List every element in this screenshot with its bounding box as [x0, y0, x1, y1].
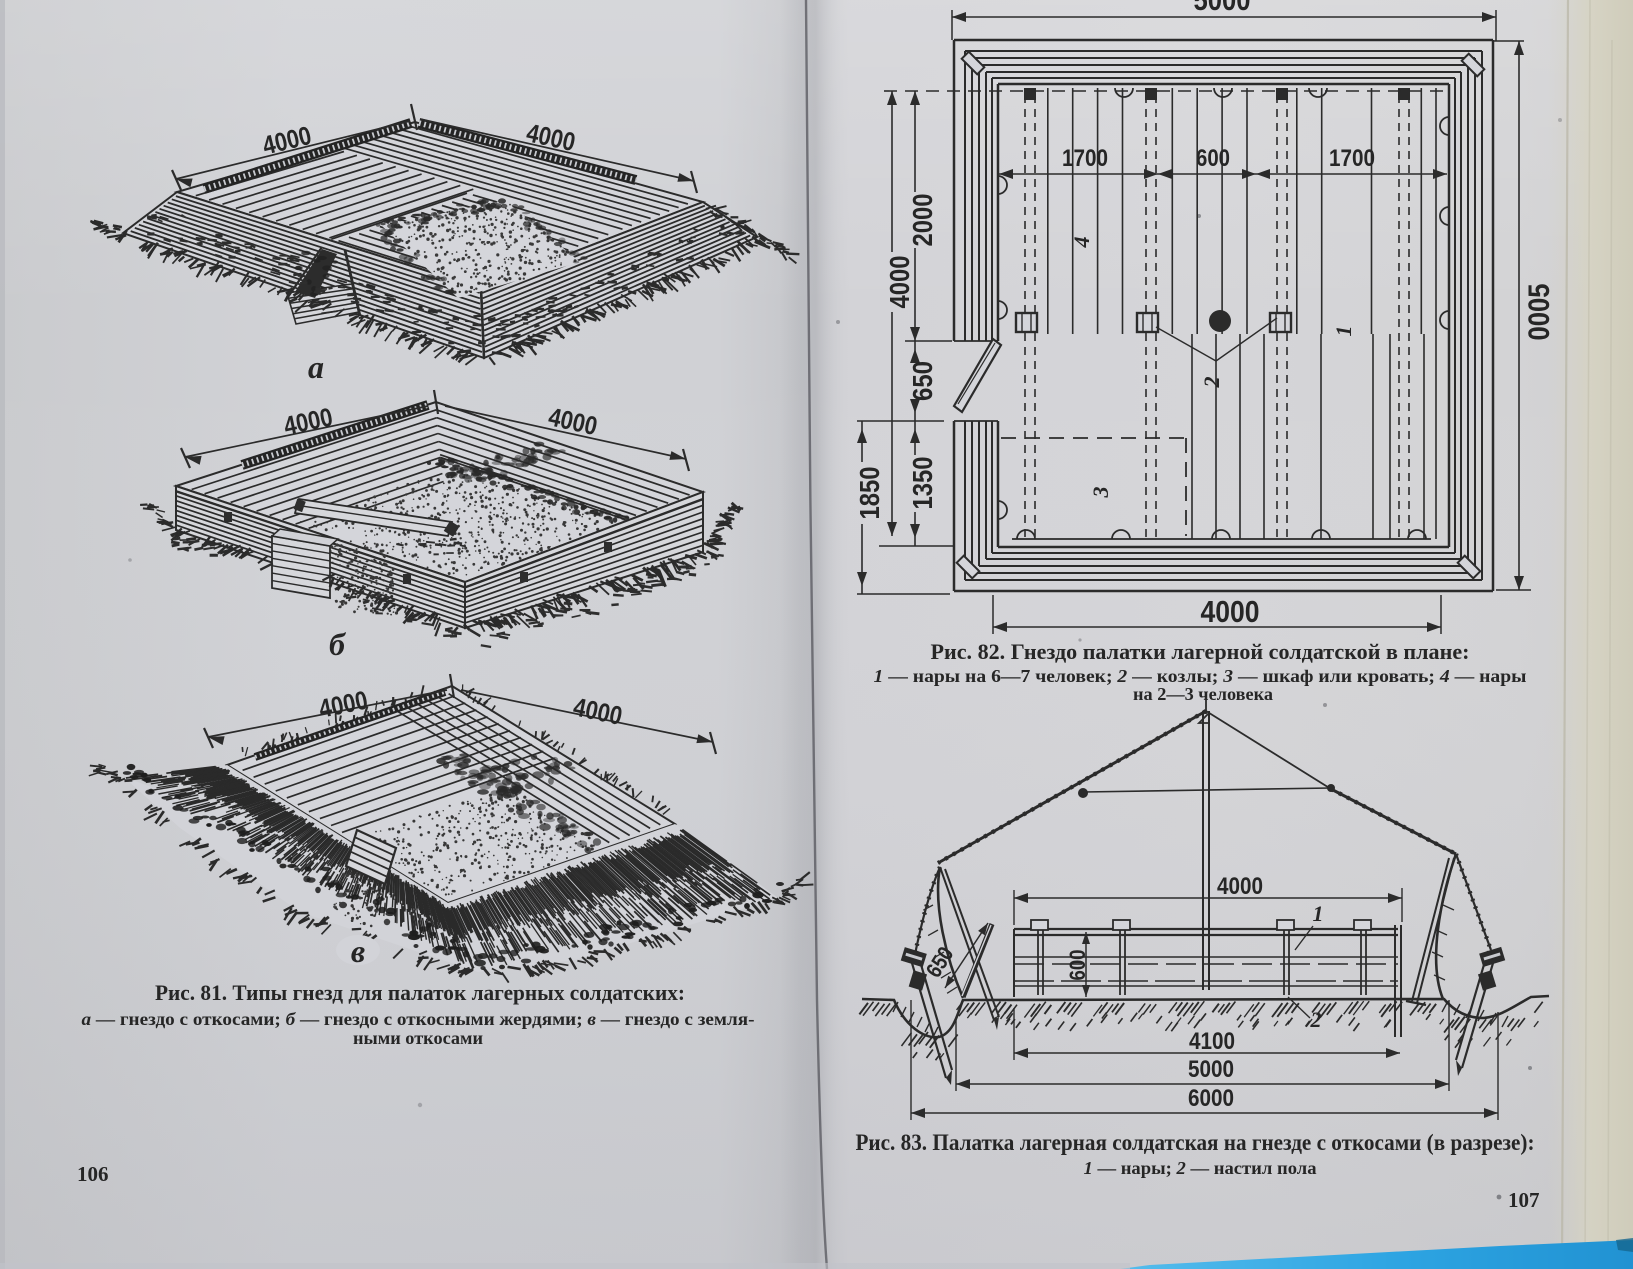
svg-text:2: 2 [1310, 1007, 1322, 1032]
svg-text:600: 600 [1065, 950, 1090, 981]
svg-text:а — гнездо с откосами; б — гне: а — гнездо с откосами; б — гнездо с отко… [82, 1009, 755, 1029]
svg-text:4000: 4000 [884, 256, 915, 309]
svg-text:1: 1 [1331, 326, 1356, 337]
svg-text:ными откосами: ными откосами [353, 1028, 483, 1048]
svg-text:4000: 4000 [1201, 594, 1260, 629]
svg-text:5000: 5000 [1194, 0, 1251, 17]
svg-text:3: 3 [1088, 487, 1113, 499]
svg-text:1 — нары на 6—7 человек; 2 — к: 1 — нары на 6—7 человек; 2 — козлы; 3 — … [874, 666, 1527, 686]
svg-text:106: 106 [77, 1162, 109, 1186]
svg-text:в: в [351, 933, 365, 969]
svg-text:на 2—3 человека: на 2—3 человека [1133, 684, 1273, 704]
svg-text:Рис. 81. Типы гнезд для палато: Рис. 81. Типы гнезд для палаток лагерных… [155, 980, 685, 1005]
svg-text:4: 4 [1069, 237, 1094, 249]
svg-text:а: а [308, 349, 324, 385]
svg-text:Рис. 83. Палатка лагерная солд: Рис. 83. Палатка лагерная солдатская на … [856, 1130, 1535, 1155]
svg-text:Рис. 82. Гнездо палатки лагерн: Рис. 82. Гнездо палатки лагерной солдатс… [931, 639, 1470, 664]
svg-text:6000: 6000 [1188, 1085, 1234, 1112]
svg-text:2000: 2000 [907, 194, 938, 247]
svg-text:1850: 1850 [854, 467, 885, 520]
svg-text:1700: 1700 [1329, 145, 1375, 172]
svg-text:б: б [329, 626, 347, 662]
svg-text:1: 1 [1313, 901, 1324, 926]
svg-text:4000: 4000 [1217, 873, 1263, 900]
svg-text:1 — нары; 2 — настил пола: 1 — нары; 2 — настил пола [1084, 1158, 1317, 1178]
svg-text:2: 2 [1199, 377, 1224, 389]
svg-text:600: 600 [1196, 145, 1230, 172]
svg-text:5000: 5000 [1188, 1056, 1234, 1083]
svg-text:107: 107 [1508, 1188, 1540, 1212]
svg-text:1700: 1700 [1062, 145, 1108, 172]
svg-text:650: 650 [907, 361, 938, 401]
svg-text:1350: 1350 [907, 457, 938, 510]
svg-text:4100: 4100 [1189, 1028, 1235, 1055]
svg-text:0005: 0005 [1523, 284, 1556, 341]
